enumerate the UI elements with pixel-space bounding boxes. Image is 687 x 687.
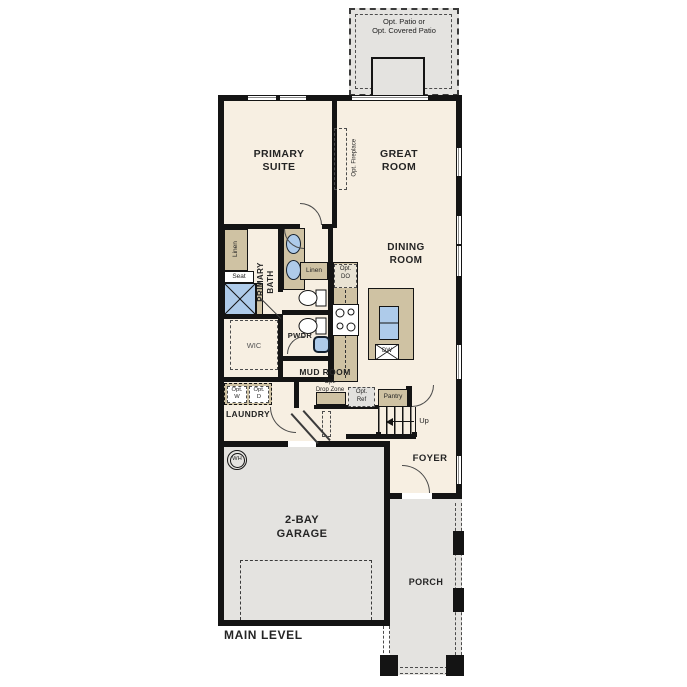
stair-newel-right: [412, 432, 417, 437]
pantry-label: Pantry: [378, 393, 408, 401]
front-door-opening: [402, 493, 432, 499]
window-dining-3: [456, 345, 462, 379]
porch-rail-right: [455, 503, 462, 655]
linen-closet-hall-label: Linen: [300, 267, 328, 275]
stair-newel-left: [376, 432, 381, 437]
vanity-sink-2: [286, 260, 301, 280]
toilet-icon-bath: [298, 288, 328, 308]
water-heater-label: WH: [227, 456, 247, 463]
mud-room-label: MUD ROOM: [292, 367, 358, 378]
garage-door-bay: [240, 560, 372, 620]
wall-left: [218, 95, 224, 626]
drop-zone-bench: [316, 392, 346, 405]
wall-garage-bottom: [218, 620, 390, 626]
shower-seat-label: Seat: [224, 273, 254, 281]
porch-post-right-2: [453, 588, 464, 612]
window-dining-1: [456, 216, 462, 244]
porch-post-right-1: [453, 531, 464, 555]
wall-laundry-right: [294, 382, 299, 408]
linen-closet-bath-label: Linen: [232, 234, 240, 264]
shower-icon: [224, 283, 256, 315]
optional-double-oven-label: Opt. DO: [334, 266, 357, 281]
stairs-direction-arrow: [386, 418, 393, 426]
optional-dryer-label: Opt. D: [249, 387, 269, 401]
optional-washer-label: Opt. W: [227, 387, 247, 401]
wall-wic-right: [278, 314, 283, 382]
level-title: MAIN LEVEL: [224, 628, 334, 643]
stairs-up-label: Up: [415, 416, 433, 425]
primary-suite-label: PRIMARY SUITE: [244, 148, 314, 174]
laundry-label: LAUNDRY: [221, 409, 275, 420]
porch-rail-left: [383, 626, 390, 658]
island-sink-icon: [379, 306, 399, 340]
window-suite-1: [248, 95, 276, 101]
range-icon: [332, 304, 359, 336]
optional-fireplace-box: [334, 128, 347, 190]
porch-post-corner-left: [380, 655, 398, 676]
pwdr-sink: [313, 336, 330, 353]
wic-label: WIC: [238, 341, 270, 350]
porch-label: PORCH: [398, 577, 454, 588]
optional-patio-label: Opt. Patio or Opt. Covered Patio: [352, 17, 456, 36]
window-great-room: [456, 148, 462, 176]
window-dining-2: [456, 246, 462, 276]
optional-refrigerator-label: Opt. Ref: [348, 389, 375, 404]
stairs-direction-line: [392, 421, 414, 422]
wall-garage-right: [384, 441, 390, 626]
optional-fireplace-label: Opt. Fireplace: [351, 124, 359, 192]
floor-plan: Opt. Patio or Opt. Covered Patio Linen S…: [0, 0, 687, 687]
dining-room-label: DINING ROOM: [376, 242, 436, 267]
foyer-label: FOYER: [406, 453, 454, 465]
wall-pwdr-bottom: [282, 356, 332, 361]
window-suite-2: [280, 95, 306, 101]
great-room-label: GREAT ROOM: [366, 148, 432, 174]
window-foyer: [456, 456, 462, 484]
porch-post-corner-right: [446, 655, 464, 676]
dishwasher-label: DW: [375, 348, 399, 356]
garage-entry-opening: [288, 441, 316, 447]
wall-wc-pwdr: [282, 310, 332, 315]
patio-stoop: [371, 57, 425, 97]
porch-rail-bottom: [400, 667, 448, 674]
garage-label: 2-BAY GARAGE: [248, 514, 356, 542]
sliding-door-great-room: [352, 95, 428, 101]
